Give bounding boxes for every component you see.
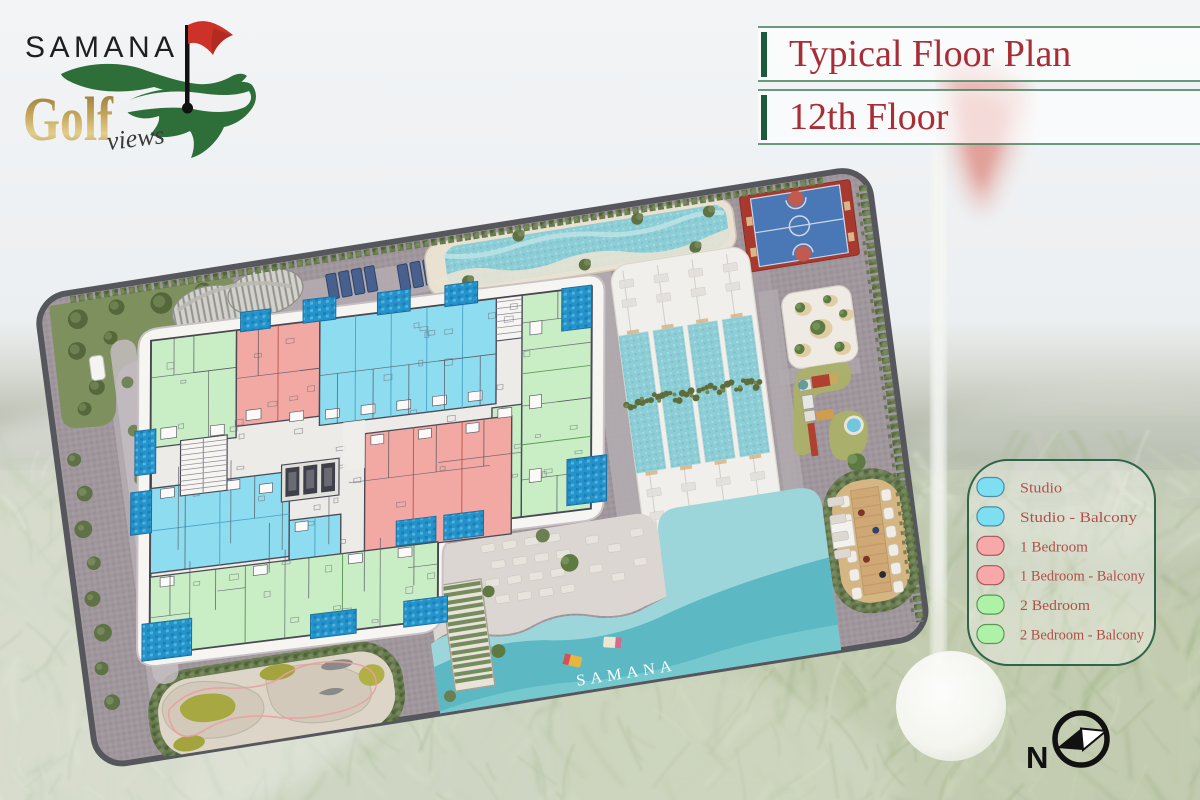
svg-text:SAMANA: SAMANA <box>25 31 179 64</box>
svg-text:2 Bedroom: 2 Bedroom <box>1020 598 1090 614</box>
svg-text:2 Bedroom - Balcony: 2 Bedroom - Balcony <box>1020 628 1144 644</box>
svg-text:Typical Floor Plan: Typical Floor Plan <box>789 33 1071 75</box>
svg-text:Studio - Balcony: Studio - Balcony <box>1020 510 1138 526</box>
svg-text:1 Bedroom - Balcony: 1 Bedroom - Balcony <box>1020 569 1145 585</box>
svg-text:1 Bedroom: 1 Bedroom <box>1020 539 1088 555</box>
svg-text:12th Floor: 12th Floor <box>789 96 949 138</box>
svg-text:N: N <box>1026 740 1048 775</box>
svg-text:Studio: Studio <box>1020 481 1062 497</box>
svg-text:Golf: Golf <box>23 86 114 154</box>
